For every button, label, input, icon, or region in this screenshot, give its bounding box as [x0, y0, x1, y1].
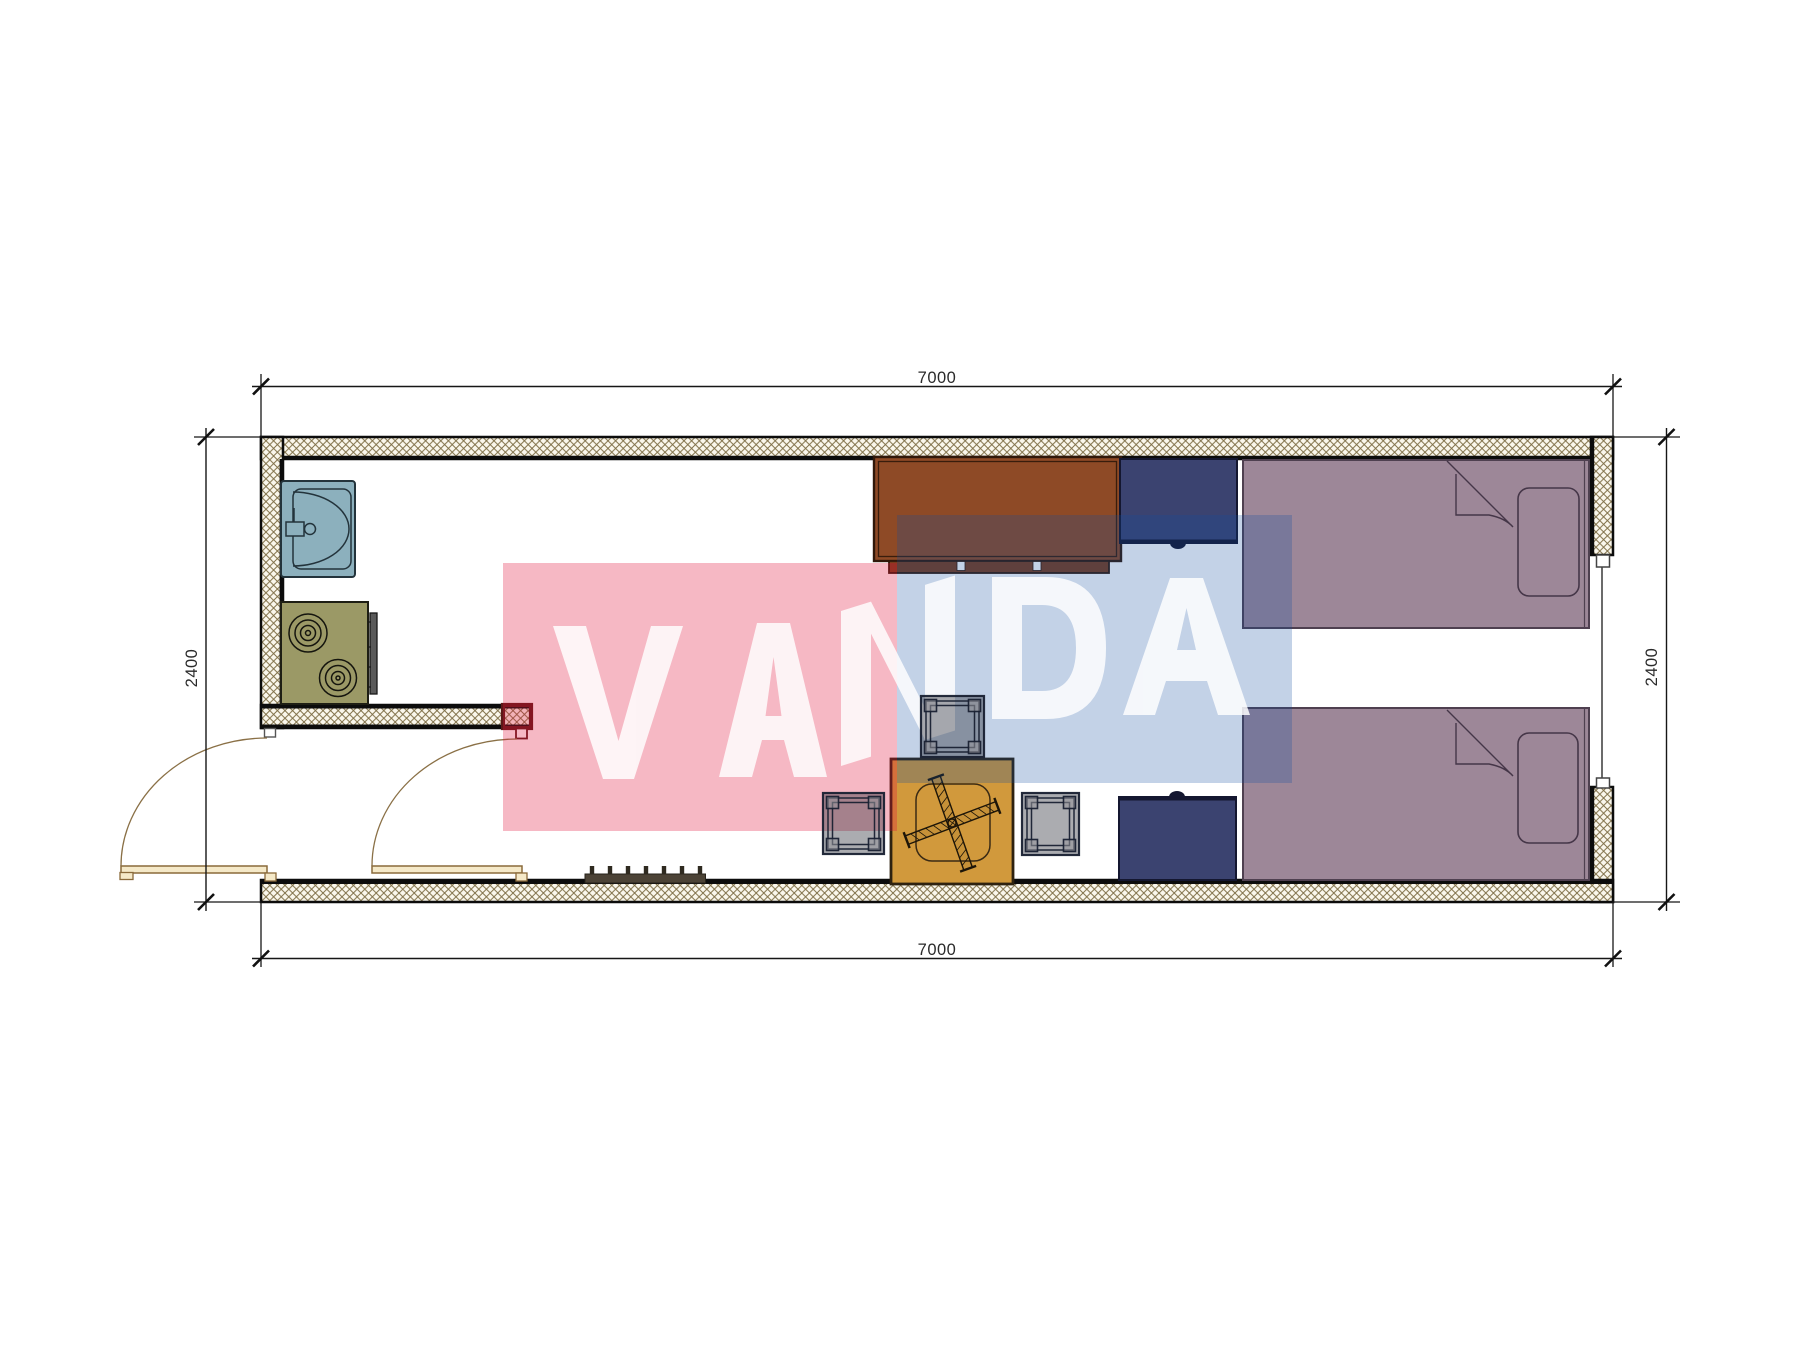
svg-text:7000: 7000 [918, 369, 957, 387]
svg-text:2400: 2400 [183, 649, 201, 688]
svg-text:2400: 2400 [1643, 648, 1661, 687]
svg-text:7000: 7000 [918, 941, 957, 959]
